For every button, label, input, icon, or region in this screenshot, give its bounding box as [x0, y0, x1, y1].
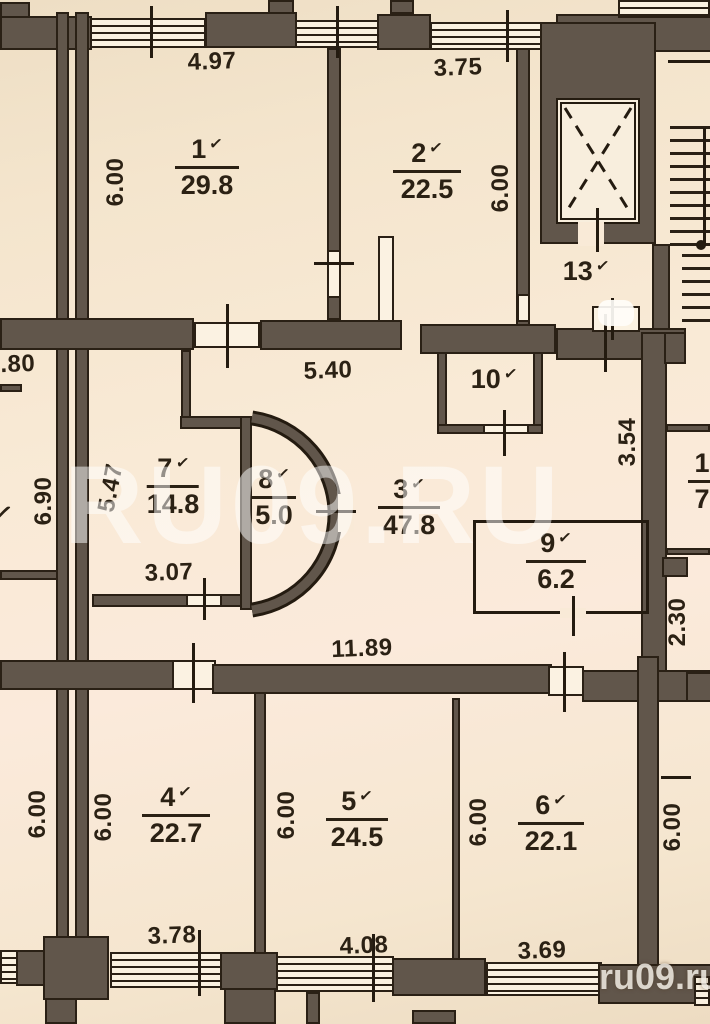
room-6-label: 6✓ 22.1: [518, 792, 584, 857]
wall: [666, 424, 710, 432]
wall: [412, 1010, 456, 1024]
dimension-tick: [503, 410, 506, 456]
room-number: 9: [540, 528, 555, 558]
dimension-label: 3.75: [433, 53, 483, 83]
room-number: 1: [191, 134, 206, 164]
label-rule: [147, 485, 199, 488]
label-rule: [393, 170, 461, 173]
room-area: 5.0: [252, 501, 296, 531]
watermark-corner: ru09.ru: [599, 956, 710, 998]
dimension-label: 5.47: [93, 461, 130, 514]
room-number: 13: [563, 256, 593, 286]
room-area: 6.2: [526, 565, 586, 595]
wall: [260, 320, 402, 350]
label-rule: [142, 814, 210, 817]
room-9-label: 9✓ 6.2: [526, 530, 586, 595]
room-8-label: 8✓ 5.0: [252, 466, 296, 531]
wall: [652, 244, 670, 332]
check-icon: ✓: [358, 788, 374, 806]
wall: [533, 352, 543, 432]
window: [430, 22, 556, 50]
check-icon: ✓: [275, 466, 291, 484]
dimension-label: 6.90: [30, 477, 58, 526]
door-opening: [338, 494, 354, 532]
room-number: 6: [535, 790, 550, 820]
dimension-tick: [316, 510, 356, 513]
dimension-label: 6.00: [102, 158, 130, 207]
wall: [254, 692, 266, 956]
room-area: 29.8: [175, 171, 239, 201]
elevator-x-icon: [560, 102, 636, 220]
wall: [437, 352, 447, 432]
wall: [181, 350, 191, 422]
window: [486, 962, 602, 996]
wall: [43, 936, 109, 1000]
dimension-label: 11.80: [0, 350, 36, 380]
room-7-label: 7✓ 14.8: [147, 455, 200, 520]
dimension-label: 3.69: [517, 936, 567, 966]
stair-rail: [703, 128, 706, 246]
label-rule: [688, 480, 710, 483]
check-icon: ✓: [557, 530, 573, 548]
wall: [306, 992, 320, 1024]
room-number: 7: [157, 453, 172, 483]
window: [618, 0, 710, 18]
check-icon: ✓: [595, 258, 611, 276]
check-icon: ✓: [0, 499, 15, 528]
room-3-label: 3✓ 47.8: [378, 476, 440, 541]
room-1-label: 1✓ 29.8: [175, 136, 239, 201]
room-area: 24.5: [326, 823, 388, 853]
dimension-tick: [192, 643, 195, 703]
label-rule: [326, 818, 388, 821]
label-rule: [252, 496, 296, 499]
floor-plan: 1✓ 29.8 2✓ 22.5 3✓ 47.8 4✓ 22.7 5✓ 24.5 …: [0, 0, 710, 1024]
check-icon: ✓: [552, 792, 568, 810]
room-number: 10: [471, 364, 501, 394]
dimension-label: 11.89: [331, 634, 393, 664]
room-number: 2: [411, 138, 426, 168]
dimension-tick: [572, 596, 575, 636]
check-icon: ✓: [177, 784, 193, 802]
dimension-tick: [198, 930, 201, 996]
room-number: 1: [694, 448, 709, 478]
wall: [392, 958, 486, 996]
window-inset: [517, 294, 530, 322]
room-area: 47.8: [378, 511, 440, 541]
window-inset: [327, 250, 341, 298]
dimension-tick: [563, 652, 566, 712]
wall: [0, 384, 22, 392]
partial-room-label: 1 7: [688, 450, 710, 515]
room-10-label: 10✓: [471, 366, 517, 393]
label-rule: [526, 560, 586, 563]
dimension-label: 6.00: [90, 793, 118, 842]
shaft-inset: [378, 236, 394, 322]
wall: [75, 12, 89, 964]
room-number: 4: [160, 782, 175, 812]
room-13-label: 13✓: [563, 258, 609, 285]
dimension-tick: [226, 304, 229, 368]
wall: [0, 318, 194, 350]
wall: [637, 656, 659, 986]
room-area: 22.5: [393, 175, 461, 205]
dimension-tick: [150, 6, 153, 58]
dimension-tick: [203, 578, 206, 620]
door-opening: [578, 222, 604, 246]
door-opening: [548, 666, 584, 696]
room-2-label: 2✓ 22.5: [393, 140, 461, 205]
wall: [205, 12, 297, 48]
dimension-label: 6.00: [273, 791, 301, 840]
room-5-label: 5✓ 24.5: [326, 788, 388, 853]
wall: [212, 664, 552, 694]
dimension-tick: [506, 10, 509, 62]
dimension-label: 3.07: [144, 558, 194, 588]
dimension-label: 4.08: [339, 931, 389, 961]
wall: [220, 952, 278, 990]
room-area: 22.1: [518, 827, 584, 857]
dimension-label: 6.00: [24, 790, 52, 839]
room-4-label: 4✓ 22.7: [142, 784, 210, 849]
room-number: 3: [393, 474, 408, 504]
window: [90, 18, 206, 48]
wall: [224, 988, 276, 1024]
wall: [666, 548, 710, 555]
window: [110, 952, 222, 988]
dimension-tick: [314, 262, 354, 265]
wall: [516, 48, 530, 328]
room-area: 22.7: [142, 819, 210, 849]
wall: [390, 0, 414, 14]
smudge-artifact: [598, 300, 634, 326]
dimension-label: 6.00: [659, 803, 687, 852]
wall: [452, 698, 460, 960]
check-icon: ✓: [208, 136, 224, 154]
dimension-label: 4.97: [187, 47, 237, 77]
dimension-label: 6.00: [465, 798, 493, 847]
stair-rail-dot: [696, 240, 706, 250]
label-rule: [518, 822, 584, 825]
room-area: 14.8: [147, 490, 200, 520]
wall: [377, 14, 431, 50]
wall: [686, 672, 710, 702]
dimension-label: 3.78: [147, 921, 197, 951]
wall: [420, 324, 556, 354]
wall: [45, 998, 77, 1024]
stair-landing-edge: [668, 60, 710, 63]
window: [276, 956, 394, 992]
wall: [0, 660, 174, 690]
wall: [662, 557, 688, 577]
wall: [664, 332, 686, 364]
check-icon: ✓: [174, 455, 190, 473]
dimension-tick: [661, 776, 691, 779]
dimension-tick: [596, 208, 599, 252]
dimension-tick: [336, 6, 339, 58]
check-icon: ✓: [410, 476, 426, 494]
label-rule: [175, 166, 239, 169]
stairs: [682, 254, 710, 332]
room-area: 7: [688, 485, 710, 515]
room-number: 8: [258, 464, 273, 494]
label-rule: [378, 506, 440, 509]
room-number: 5: [341, 786, 356, 816]
door-opening: [483, 424, 529, 434]
dimension-label: 5.40: [303, 356, 353, 386]
check-icon: ✓: [503, 366, 519, 384]
wall: [0, 570, 58, 580]
dimension-label: 2.30: [664, 598, 692, 647]
check-icon: ✓: [428, 140, 444, 158]
dimension-label: 6.00: [487, 164, 515, 213]
wall: [268, 0, 294, 14]
dimension-label: 3.54: [614, 418, 642, 467]
